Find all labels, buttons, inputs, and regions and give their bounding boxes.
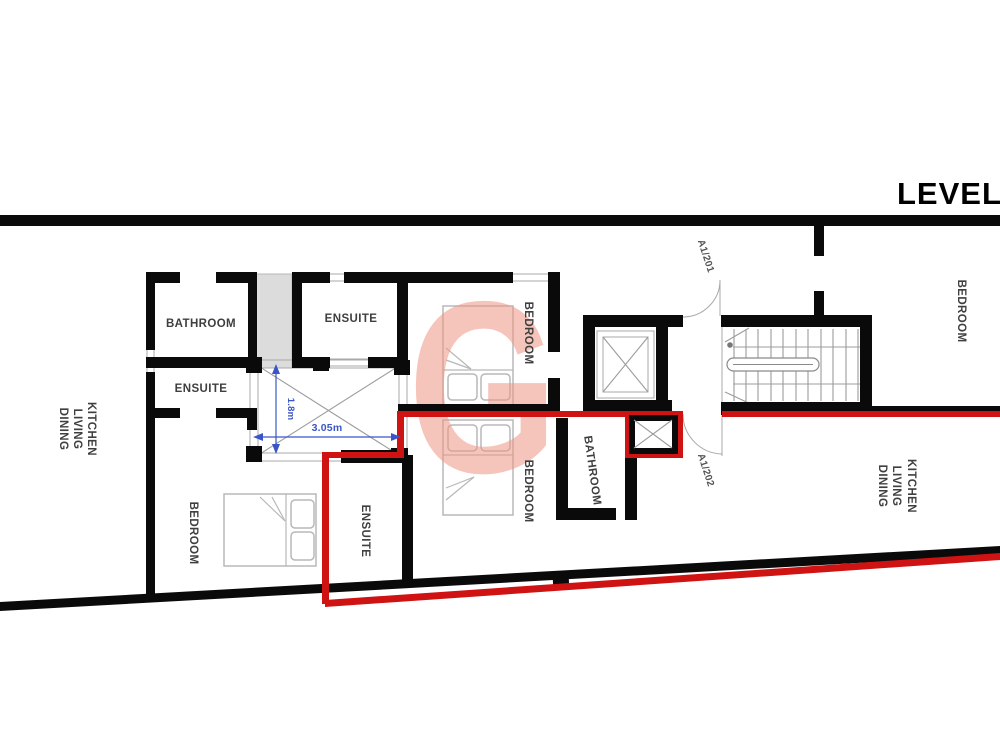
dimension-width-label: 3.05m [312,422,343,434]
floor-plan-canvas: G [0,0,1000,750]
label-dining-left: DINING [57,408,69,451]
label-ensuite-mid-left: ENSUITE [175,383,228,395]
floor-plan: G [0,0,1000,750]
lift-shaft-small [632,418,675,451]
dimension-height-label: 1.8m [285,398,296,420]
label-ensuite-top: ENSUITE [325,313,378,325]
bed-bottom-left [224,494,316,566]
label-bedroom-top-right: BEDROOM [955,280,967,343]
level-title: LEVEL [897,176,1000,211]
label-dining-right: DINING [876,465,888,508]
label-ensuite-bottom: ENSUITE [359,505,371,558]
label-bedroom-center-upper: BEDROOM [522,302,534,365]
label-bedroom-center-lower: BEDROOM [522,460,534,523]
watermark-logo: G [408,250,558,524]
service-shaft-shaded [256,274,292,368]
label-kitchen-left: KITCHEN [85,402,97,456]
label-kitchen-right: KITCHEN [905,459,917,513]
label-living-left: LIVING [71,409,83,450]
label-bathroom-top-left: BATHROOM [166,318,236,330]
label-bedroom-bottom-left: BEDROOM [187,502,199,565]
stair-post [727,342,733,348]
label-living-right: LIVING [890,466,902,507]
